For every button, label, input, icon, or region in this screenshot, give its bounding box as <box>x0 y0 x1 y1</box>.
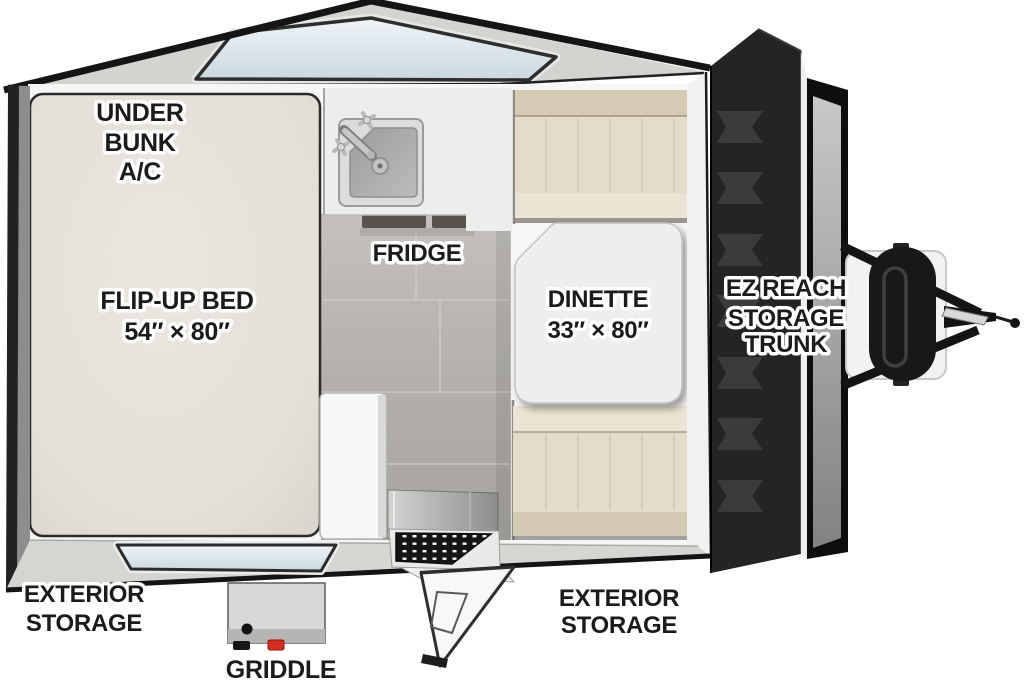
wardrobe-cabinet <box>320 393 386 539</box>
label-line: UNDER <box>96 99 184 127</box>
counter-step <box>466 215 512 231</box>
griddle <box>228 583 325 650</box>
label-exterior-storage-door-side: EXTERIOR STORAGE <box>559 585 679 639</box>
label-line: DINETTE <box>548 286 649 313</box>
cabinet-front <box>320 393 386 539</box>
flip-up-bed <box>30 94 320 536</box>
label-line: FRIDGE <box>373 240 462 267</box>
side-window <box>117 545 336 571</box>
label-line: FLIP-UP BED <box>100 287 253 315</box>
label-line: A/C <box>119 158 161 186</box>
label-line: 54″ × 80″ <box>124 318 230 346</box>
label-line: EZ REACH <box>726 275 846 302</box>
floorplan-canvas: UNDER BUNK A/C FLIP-UP BED 54″ × 80″ FRI… <box>0 0 1024 681</box>
label-line: TRUNK <box>745 331 828 358</box>
kitchen-counter <box>324 88 512 231</box>
label-fridge: FRIDGE <box>373 240 462 267</box>
floor-edge-shadow <box>496 214 510 540</box>
sink-drain-hole <box>378 164 383 169</box>
griddle-igniter-red <box>268 640 284 650</box>
dinette <box>513 90 688 540</box>
label-line: STORAGE <box>728 305 844 332</box>
dinette-bench-bottom <box>513 406 688 540</box>
fridge-shadow <box>360 228 474 236</box>
label-line: STORAGE <box>561 612 677 639</box>
label-line: EXTERIOR <box>24 581 144 608</box>
dinette-table <box>515 223 682 403</box>
coupler-latch-ball <box>1010 318 1020 328</box>
label-line: 33″ × 80″ <box>547 317 649 344</box>
trailer-floorplan-diagram: UNDER BUNK A/C FLIP-UP BED 54″ × 80″ FRI… <box>0 0 1024 681</box>
cabinet-side <box>378 395 386 537</box>
label-line: STORAGE <box>26 610 142 637</box>
right-wall <box>687 72 711 556</box>
dinette-bench-top <box>515 90 688 223</box>
label-line: BUNK <box>104 129 175 157</box>
left-wall <box>6 86 30 590</box>
label-line: GRIDDLE <box>226 656 336 681</box>
label-griddle: GRIDDLE <box>226 656 336 681</box>
label-line: EXTERIOR <box>559 585 679 612</box>
griddle-foot <box>233 641 250 650</box>
griddle-knob <box>242 624 253 635</box>
